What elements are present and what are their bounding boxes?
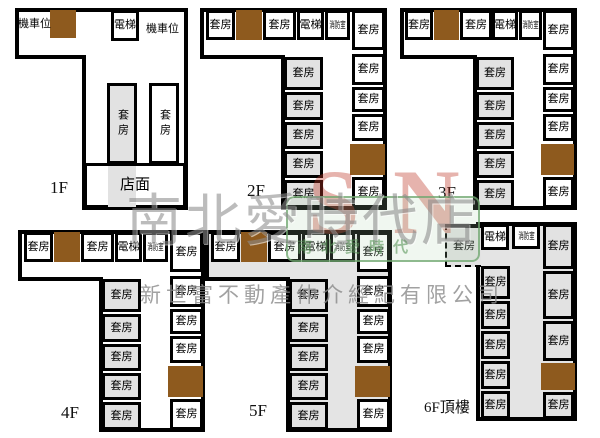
floor-label-4F: 4F bbox=[61, 403, 79, 423]
suite-room-label: 套房 bbox=[548, 400, 570, 411]
suite-room-label: 套房 bbox=[176, 286, 198, 297]
suite-room: 套房 bbox=[352, 114, 385, 141]
fire-safety-room: 消防室 bbox=[143, 232, 168, 262]
suite-room-label: 套房 bbox=[485, 340, 507, 351]
suite-room: 套房 bbox=[460, 10, 492, 40]
suite-room: 套房 bbox=[543, 392, 574, 419]
suite-room-label: 套房 bbox=[293, 189, 315, 200]
suite-room: 套房 bbox=[102, 279, 141, 312]
suite-room: 套房 bbox=[149, 83, 179, 164]
suite-room: 套房 bbox=[543, 54, 574, 85]
suite-room-label: 套房 bbox=[548, 64, 570, 75]
motorcycle-parking-label: 機車位 bbox=[146, 20, 179, 36]
suite-room-label: 套房 bbox=[28, 242, 50, 253]
suite-room: 套房 bbox=[357, 336, 390, 363]
stair-block bbox=[50, 10, 76, 38]
suite-room: 套房 bbox=[476, 57, 514, 90]
suite-room: 套房 bbox=[289, 344, 328, 371]
suite-room-label: 套房 bbox=[484, 189, 506, 200]
suite-room-label: 套房 bbox=[548, 290, 570, 301]
suite-room-label: 套房 bbox=[274, 242, 296, 253]
suite-room-label: 套房 bbox=[484, 130, 506, 141]
stair-block bbox=[541, 363, 575, 390]
suite-room-label: 套房 bbox=[111, 411, 133, 422]
suite-room: 套房 bbox=[170, 309, 203, 334]
suite-room-label: 套房 bbox=[298, 381, 320, 392]
stair-block bbox=[168, 366, 203, 397]
suite-room-label: 套房 bbox=[117, 109, 128, 139]
elevator-room: 電梯 bbox=[297, 10, 324, 40]
suite-room-label: 套房 bbox=[298, 290, 320, 301]
fire-safety-room-label: 消防室 bbox=[522, 21, 538, 30]
suite-room: 套房 bbox=[476, 122, 514, 149]
suite-room-label: 套房 bbox=[548, 25, 570, 36]
suite-room: 套房 bbox=[481, 301, 510, 329]
fire-safety-room: 消防室 bbox=[519, 10, 542, 40]
suite-room-label: 套房 bbox=[358, 64, 380, 75]
suite-room-label: 套房 bbox=[548, 336, 570, 347]
suite-room-label: 套房 bbox=[485, 277, 507, 288]
elevator-room-label: 電梯 bbox=[494, 20, 516, 31]
suite-room: 套房 bbox=[352, 177, 385, 208]
suite-room-label: 套房 bbox=[176, 344, 198, 355]
suite-room: 套房 bbox=[357, 276, 390, 307]
suite-room-label: 套房 bbox=[298, 352, 320, 363]
suite-room: 套房 bbox=[481, 391, 510, 419]
suite-room: 套房 bbox=[543, 10, 574, 50]
suite-room-label: 套房 bbox=[408, 20, 430, 31]
suite-room-label: 套房 bbox=[358, 94, 380, 105]
stair-block bbox=[350, 144, 385, 175]
suite-room: 套房 bbox=[170, 276, 203, 307]
motorcycle-parking-label: 機車位 bbox=[18, 15, 51, 31]
suite-room-label: 套房 bbox=[176, 247, 198, 258]
suite-room: 套房 bbox=[476, 180, 514, 208]
fire-safety-room-label: 消防室 bbox=[518, 232, 534, 241]
suite-room: 套房 bbox=[289, 373, 328, 400]
suite-room: 套房 bbox=[476, 151, 514, 178]
suite-room: 套房 bbox=[263, 10, 296, 40]
suite-room: 套房 bbox=[268, 232, 301, 262]
suite-room: 套房 bbox=[284, 151, 323, 178]
suite-room-label: 套房 bbox=[298, 323, 320, 334]
suite-room-label: 套房 bbox=[485, 400, 507, 411]
fire-safety-room: 消防室 bbox=[325, 10, 350, 40]
suite-room: 套房 bbox=[405, 10, 433, 40]
suite-room: 套房 bbox=[211, 232, 240, 262]
floor-label-1F: 1F bbox=[50, 178, 68, 198]
suite-room: 套房 bbox=[543, 177, 574, 208]
suite-room-label: 套房 bbox=[358, 187, 380, 198]
suite-room-label: 套房 bbox=[159, 109, 170, 139]
suite-room: 套房 bbox=[352, 87, 385, 112]
suite-room: 套房 bbox=[543, 114, 574, 141]
elevator-room-label: 電梯 bbox=[114, 20, 136, 31]
floorplan-canvas: SN 南北愛時代店 南北愛時代 新世富不動產仲介經紀有限公司 機車位電梯機車位套… bbox=[0, 0, 600, 438]
suite-room: 套房 bbox=[102, 373, 141, 400]
fire-safety-room: 消防室 bbox=[512, 224, 540, 249]
suite-room-label: 套房 bbox=[269, 20, 291, 31]
suite-room: 套房 bbox=[352, 54, 385, 85]
elevator-room: 電梯 bbox=[302, 232, 329, 262]
elevator-room: 電梯 bbox=[492, 10, 518, 40]
suite-room: 套房 bbox=[102, 314, 141, 342]
floor-label-6F: 6F頂樓 bbox=[424, 396, 470, 417]
fire-safety-room-label: 消防室 bbox=[329, 21, 345, 30]
suite-room-label: 套房 bbox=[293, 101, 315, 112]
stair-block bbox=[355, 366, 390, 397]
suite-room: 套房 bbox=[543, 271, 574, 319]
suite-room: 套房 bbox=[481, 266, 510, 299]
suite-room: 套房 bbox=[206, 10, 235, 40]
suite-room: 套房 bbox=[543, 87, 574, 112]
suite-room: 套房 bbox=[289, 314, 328, 342]
stair-block bbox=[434, 10, 459, 40]
suite-room: 套房 bbox=[481, 331, 510, 359]
suite-room: 套房 bbox=[445, 224, 481, 267]
suite-room: 套房 bbox=[24, 232, 53, 262]
suite-room-label: 套房 bbox=[485, 310, 507, 321]
suite-room: 套房 bbox=[289, 279, 328, 312]
suite-room-label: 套房 bbox=[484, 68, 506, 79]
suite-room-label: 套房 bbox=[293, 159, 315, 170]
suite-room: 套房 bbox=[102, 344, 141, 371]
suite-room-label: 套房 bbox=[465, 20, 487, 31]
suite-room-label: 套房 bbox=[111, 381, 133, 392]
suite-room-label: 套房 bbox=[363, 247, 385, 258]
suite-room-label: 套房 bbox=[298, 411, 320, 422]
suite-room-label: 套房 bbox=[111, 290, 133, 301]
suite-room: 套房 bbox=[543, 321, 574, 361]
suite-room: 套房 bbox=[170, 399, 203, 430]
suite-room: 套房 bbox=[170, 336, 203, 363]
suite-room: 套房 bbox=[170, 232, 203, 272]
elevator-room-label: 電梯 bbox=[118, 242, 140, 253]
elevator-room: 電梯 bbox=[481, 224, 509, 250]
suite-room-label: 套房 bbox=[111, 352, 133, 363]
suite-room: 套房 bbox=[352, 10, 385, 50]
suite-room: 套房 bbox=[284, 57, 323, 90]
suite-room-label: 套房 bbox=[358, 25, 380, 36]
suite-room-label: 套房 bbox=[363, 409, 385, 420]
floor-label-2F: 2F bbox=[247, 181, 265, 201]
suite-room-label: 套房 bbox=[176, 316, 198, 327]
floor-label-3F: 3F bbox=[438, 183, 456, 203]
suite-room: 套房 bbox=[81, 232, 114, 262]
suite-room-label: 套房 bbox=[363, 316, 385, 327]
suite-room-label: 套房 bbox=[215, 242, 237, 253]
suite-room: 套房 bbox=[481, 361, 510, 389]
stair-block bbox=[241, 232, 267, 262]
suite-room-label: 套房 bbox=[548, 122, 570, 133]
suite-room-label: 套房 bbox=[548, 187, 570, 198]
fire-safety-room-label: 消防室 bbox=[147, 243, 163, 252]
suite-room: 套房 bbox=[284, 92, 323, 120]
suite-room-label: 套房 bbox=[363, 344, 385, 355]
suite-room-label: 套房 bbox=[485, 370, 507, 381]
suite-room-label: 套房 bbox=[87, 242, 109, 253]
suite-room: 套房 bbox=[284, 122, 323, 149]
stair-block bbox=[54, 232, 80, 262]
suite-room: 套房 bbox=[102, 402, 141, 430]
suite-room: 套房 bbox=[476, 92, 514, 120]
suite-room: 套房 bbox=[107, 83, 137, 164]
elevator-room: 電梯 bbox=[111, 10, 139, 41]
elevator-room: 電梯 bbox=[115, 232, 142, 262]
suite-room-label: 套房 bbox=[484, 101, 506, 112]
suite-room: 套房 bbox=[357, 399, 390, 430]
suite-room-label: 套房 bbox=[210, 20, 232, 31]
suite-room: 套房 bbox=[284, 180, 323, 208]
stair-block bbox=[541, 144, 574, 175]
suite-room-label: 套房 bbox=[293, 130, 315, 141]
suite-room: 套房 bbox=[543, 224, 574, 269]
suite-room: 套房 bbox=[357, 232, 390, 272]
fire-safety-room-label: 消防室 bbox=[334, 243, 350, 252]
suite-room-label: 套房 bbox=[358, 122, 380, 133]
stair-block bbox=[236, 10, 262, 40]
floor-label-5F: 5F bbox=[249, 401, 267, 421]
suite-room-label: 套房 bbox=[176, 409, 198, 420]
suite-room-label: 套房 bbox=[453, 241, 475, 252]
fire-safety-room: 消防室 bbox=[330, 232, 355, 262]
suite-room-label: 套房 bbox=[484, 159, 506, 170]
suite-room: 套房 bbox=[357, 309, 390, 334]
suite-room-label: 套房 bbox=[293, 68, 315, 79]
suite-room-label: 套房 bbox=[548, 94, 570, 105]
elevator-room-label: 電梯 bbox=[484, 232, 506, 243]
suite-room-label: 套房 bbox=[363, 286, 385, 297]
elevator-room-label: 電梯 bbox=[300, 20, 322, 31]
storefront-room-label: 店面 bbox=[120, 178, 150, 193]
suite-room: 套房 bbox=[289, 402, 328, 430]
suite-room-label: 套房 bbox=[548, 241, 570, 252]
suite-room-label: 套房 bbox=[111, 323, 133, 334]
elevator-room-label: 電梯 bbox=[305, 242, 327, 253]
